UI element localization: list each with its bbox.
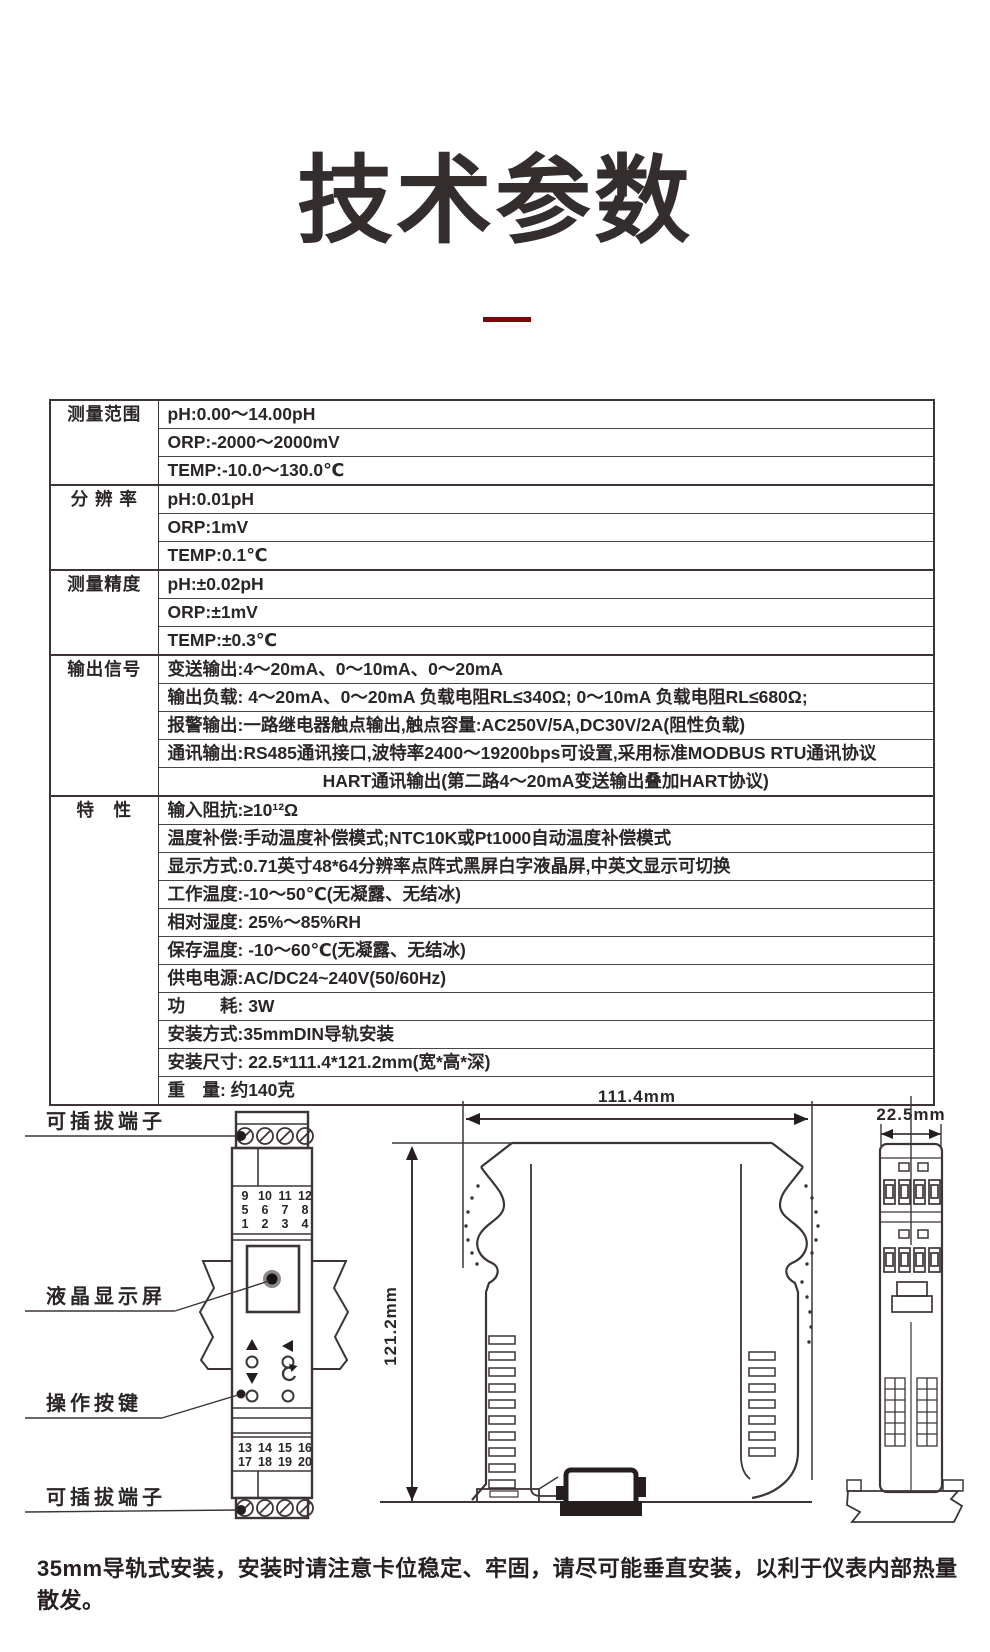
dimension-depth-label: 121.2mm [381,1286,400,1366]
end-view-diagram: 22.5mm [830,1060,970,1530]
terminal-number: 20 [298,1455,312,1469]
spec-value: 工作温度:-10～50℃(无凝露、无结冰) [158,881,934,909]
top-terminal-block [236,1112,313,1148]
terminal-screws [237,1128,313,1144]
table-row: 特 性 输入阻抗:≥10¹²Ω [50,796,934,825]
spec-group-label: 分 辨 率 [50,485,158,570]
table-row: 测量范围 pH:0.00～14.00pH [50,400,934,429]
left-arrow-icon [282,1340,293,1352]
terminal-number: 18 [258,1455,272,1469]
mounting-note: 35mm导轨式安装，安装时请注意卡位稳定、牢固，请尽可能垂直安装，以利于仪表内部… [37,1551,967,1615]
end-connectors-row2 [884,1248,940,1272]
terminal-number: 5 [242,1203,249,1217]
spec-value: 功 耗: 3W [158,993,934,1021]
spec-value: pH:0.01pH [158,485,934,514]
din-rail-section [847,1480,963,1522]
terminal-number: 7 [282,1203,289,1217]
spec-value: TEMP:0.1℃ [158,542,934,571]
table-row: TEMP:0.1℃ [50,542,934,571]
bottom-terminal-block [236,1498,313,1518]
device-body: 9 10 11 12 5 6 7 8 1 2 3 4 [232,1148,312,1498]
spec-value: 相对湿度: 25%～85%RH [158,909,934,937]
button-enter [283,1391,294,1402]
table-row: 显示方式:0.71英寸48*64分辨率点阵式黑屏白字液晶屏,中英文显示可切换 [50,853,934,881]
spec-value: 通讯输出:RS485通讯接口,波特率2400～19200bps可设置,采用标准M… [158,740,934,768]
spec-value: 显示方式:0.71英寸48*64分辨率点阵式黑屏白字液晶屏,中英文显示可切换 [158,853,934,881]
terminal-number: 6 [262,1203,269,1217]
spec-value: 温度补偿:手动温度补偿模式;NTC10K或Pt1000自动温度补偿模式 [158,825,934,853]
spec-value: 报警输出:一路继电器触点输出,触点容量:AC250V/5A,DC30V/2A(阻… [158,712,934,740]
spec-value: 安装方式:35mmDIN导轨安装 [158,1021,934,1049]
table-row: 保存温度: -10～60℃(无凝露、无结冰) [50,937,934,965]
table-row: 相对湿度: 25%～85%RH [50,909,934,937]
din-clip [556,1470,646,1516]
terminal-numbers-bottom: 13 14 15 16 17 18 19 20 [238,1441,312,1469]
label-keys: 操作按键 [46,1391,142,1415]
down-arrow-icon [246,1373,258,1384]
enter-rotate-icon [289,1364,298,1372]
spec-group-label: 特 性 [50,796,158,1105]
table-row: HART通讯输出(第二路4～20mA变送输出叠加HART协议) [50,768,934,797]
spec-value: 保存温度: -10～60℃(无凝露、无结冰) [158,937,934,965]
terminal-number: 12 [298,1189,312,1203]
spec-value: 供电电源:AC/DC24~240V(50/60Hz) [158,965,934,993]
spec-table: 测量范围 pH:0.00～14.00pH ORP:-2000～2000mV TE… [49,399,935,1106]
spec-value: TEMP:±0.3℃ [158,627,934,656]
spec-value: 变送输出:4～20mA、0～10mA、0～20mA [158,655,934,684]
terminal-number: 1 [242,1217,249,1231]
table-row: 供电电源:AC/DC24~240V(50/60Hz) [50,965,934,993]
terminal-number: 3 [282,1217,289,1231]
table-row: 工作温度:-10～50℃(无凝露、无结冰) [50,881,934,909]
leader-line [25,1510,238,1512]
spec-value: ORP:1mV [158,514,934,542]
spec-table-wrap: 测量范围 pH:0.00～14.00pH ORP:-2000～2000mV TE… [49,399,935,1106]
terminal-number: 14 [258,1441,272,1455]
spec-value: 输出负载: 4～20mA、0～20mA 负载电阻RL≤340Ω; 0～10mA … [158,684,934,712]
table-row: 功 耗: 3W [50,993,934,1021]
table-row: TEMP:±0.3℃ [50,627,934,656]
end-latch [892,1282,932,1312]
callout-dot [267,1274,278,1285]
spec-value: TEMP:-10.0～130.0℃ [158,457,934,486]
operation-buttons [237,1339,298,1402]
dimension-length-label: 111.4mm [598,1087,676,1106]
table-row: 输出信号 变送输出:4～20mA、0～10mA、0～20mA [50,655,934,684]
spec-value: ORP:-2000～2000mV [158,429,934,457]
page: 技术参数 测量范围 pH:0.00～14.00pH ORP:-2000～2000… [0,0,990,1652]
end-connectors-row1 [884,1180,940,1204]
leader-line [162,1395,238,1418]
spec-value: pH:±0.02pH [158,570,934,599]
spec-value: HART通讯输出(第二路4～20mA变送输出叠加HART协议) [158,768,934,797]
terminal-number: 13 [238,1441,252,1455]
spec-value: 输入阻抗:≥10¹²Ω [158,796,934,825]
table-row: 通讯输出:RS485通讯接口,波特率2400～19200bps可设置,采用标准M… [50,740,934,768]
table-row: ORP:±1mV [50,599,934,627]
terminal-number: 2 [262,1217,269,1231]
table-row: 分 辨 率 pH:0.01pH [50,485,934,514]
side-view-diagram: 111.4mm 121.2mm [360,1060,840,1520]
terminal-number: 19 [278,1455,292,1469]
button-up [247,1357,258,1368]
title-accent-dash [483,317,531,322]
label-terminal-top: 可插拔端子 [46,1109,166,1133]
terminal-number: 9 [242,1189,249,1203]
table-row: 输出负载: 4～20mA、0～20mA 负载电阻RL≤340Ω; 0～10mA … [50,684,934,712]
table-row: 温度补偿:手动温度补偿模式;NTC10K或Pt1000自动温度补偿模式 [50,825,934,853]
terminal-number: 10 [258,1189,272,1203]
callout-dot [237,1390,246,1399]
table-row: 测量精度 pH:±0.02pH [50,570,934,599]
terminal-number: 16 [298,1441,312,1455]
spec-value: pH:0.00～14.00pH [158,400,934,429]
terminal-number: 11 [278,1189,291,1203]
up-arrow-icon [246,1339,258,1350]
page-title: 技术参数 [0,146,990,258]
label-terminal-bottom: 可插拔端子 [46,1485,166,1509]
terminal-number: 17 [238,1455,252,1469]
table-row: ORP:-2000～2000mV [50,429,934,457]
terminal-numbers-top: 9 10 11 12 5 6 7 8 1 2 3 4 [242,1189,312,1231]
table-row: ORP:1mV [50,514,934,542]
table-row: 报警输出:一路继电器触点输出,触点容量:AC250V/5A,DC30V/2A(阻… [50,712,934,740]
front-view-diagram: 9 10 11 12 5 6 7 8 1 2 3 4 [20,1075,365,1530]
spec-value: ORP:±1mV [158,599,934,627]
leader-line [175,1281,269,1311]
spec-group-label: 测量精度 [50,570,158,655]
terminal-number: 15 [278,1441,292,1455]
table-row: TEMP:-10.0～130.0℃ [50,457,934,486]
side-profile [380,1143,820,1516]
terminal-number: 8 [302,1203,309,1217]
dotted-arc [464,1184,819,1343]
lcd-screen [247,1246,299,1312]
terminal-number: 4 [302,1217,309,1231]
spec-group-label: 输出信号 [50,655,158,796]
label-lcd: 液晶显示屏 [46,1284,166,1308]
button-down [247,1391,258,1402]
spec-group-label: 测量范围 [50,400,158,485]
table-row: 安装方式:35mmDIN导轨安装 [50,1021,934,1049]
